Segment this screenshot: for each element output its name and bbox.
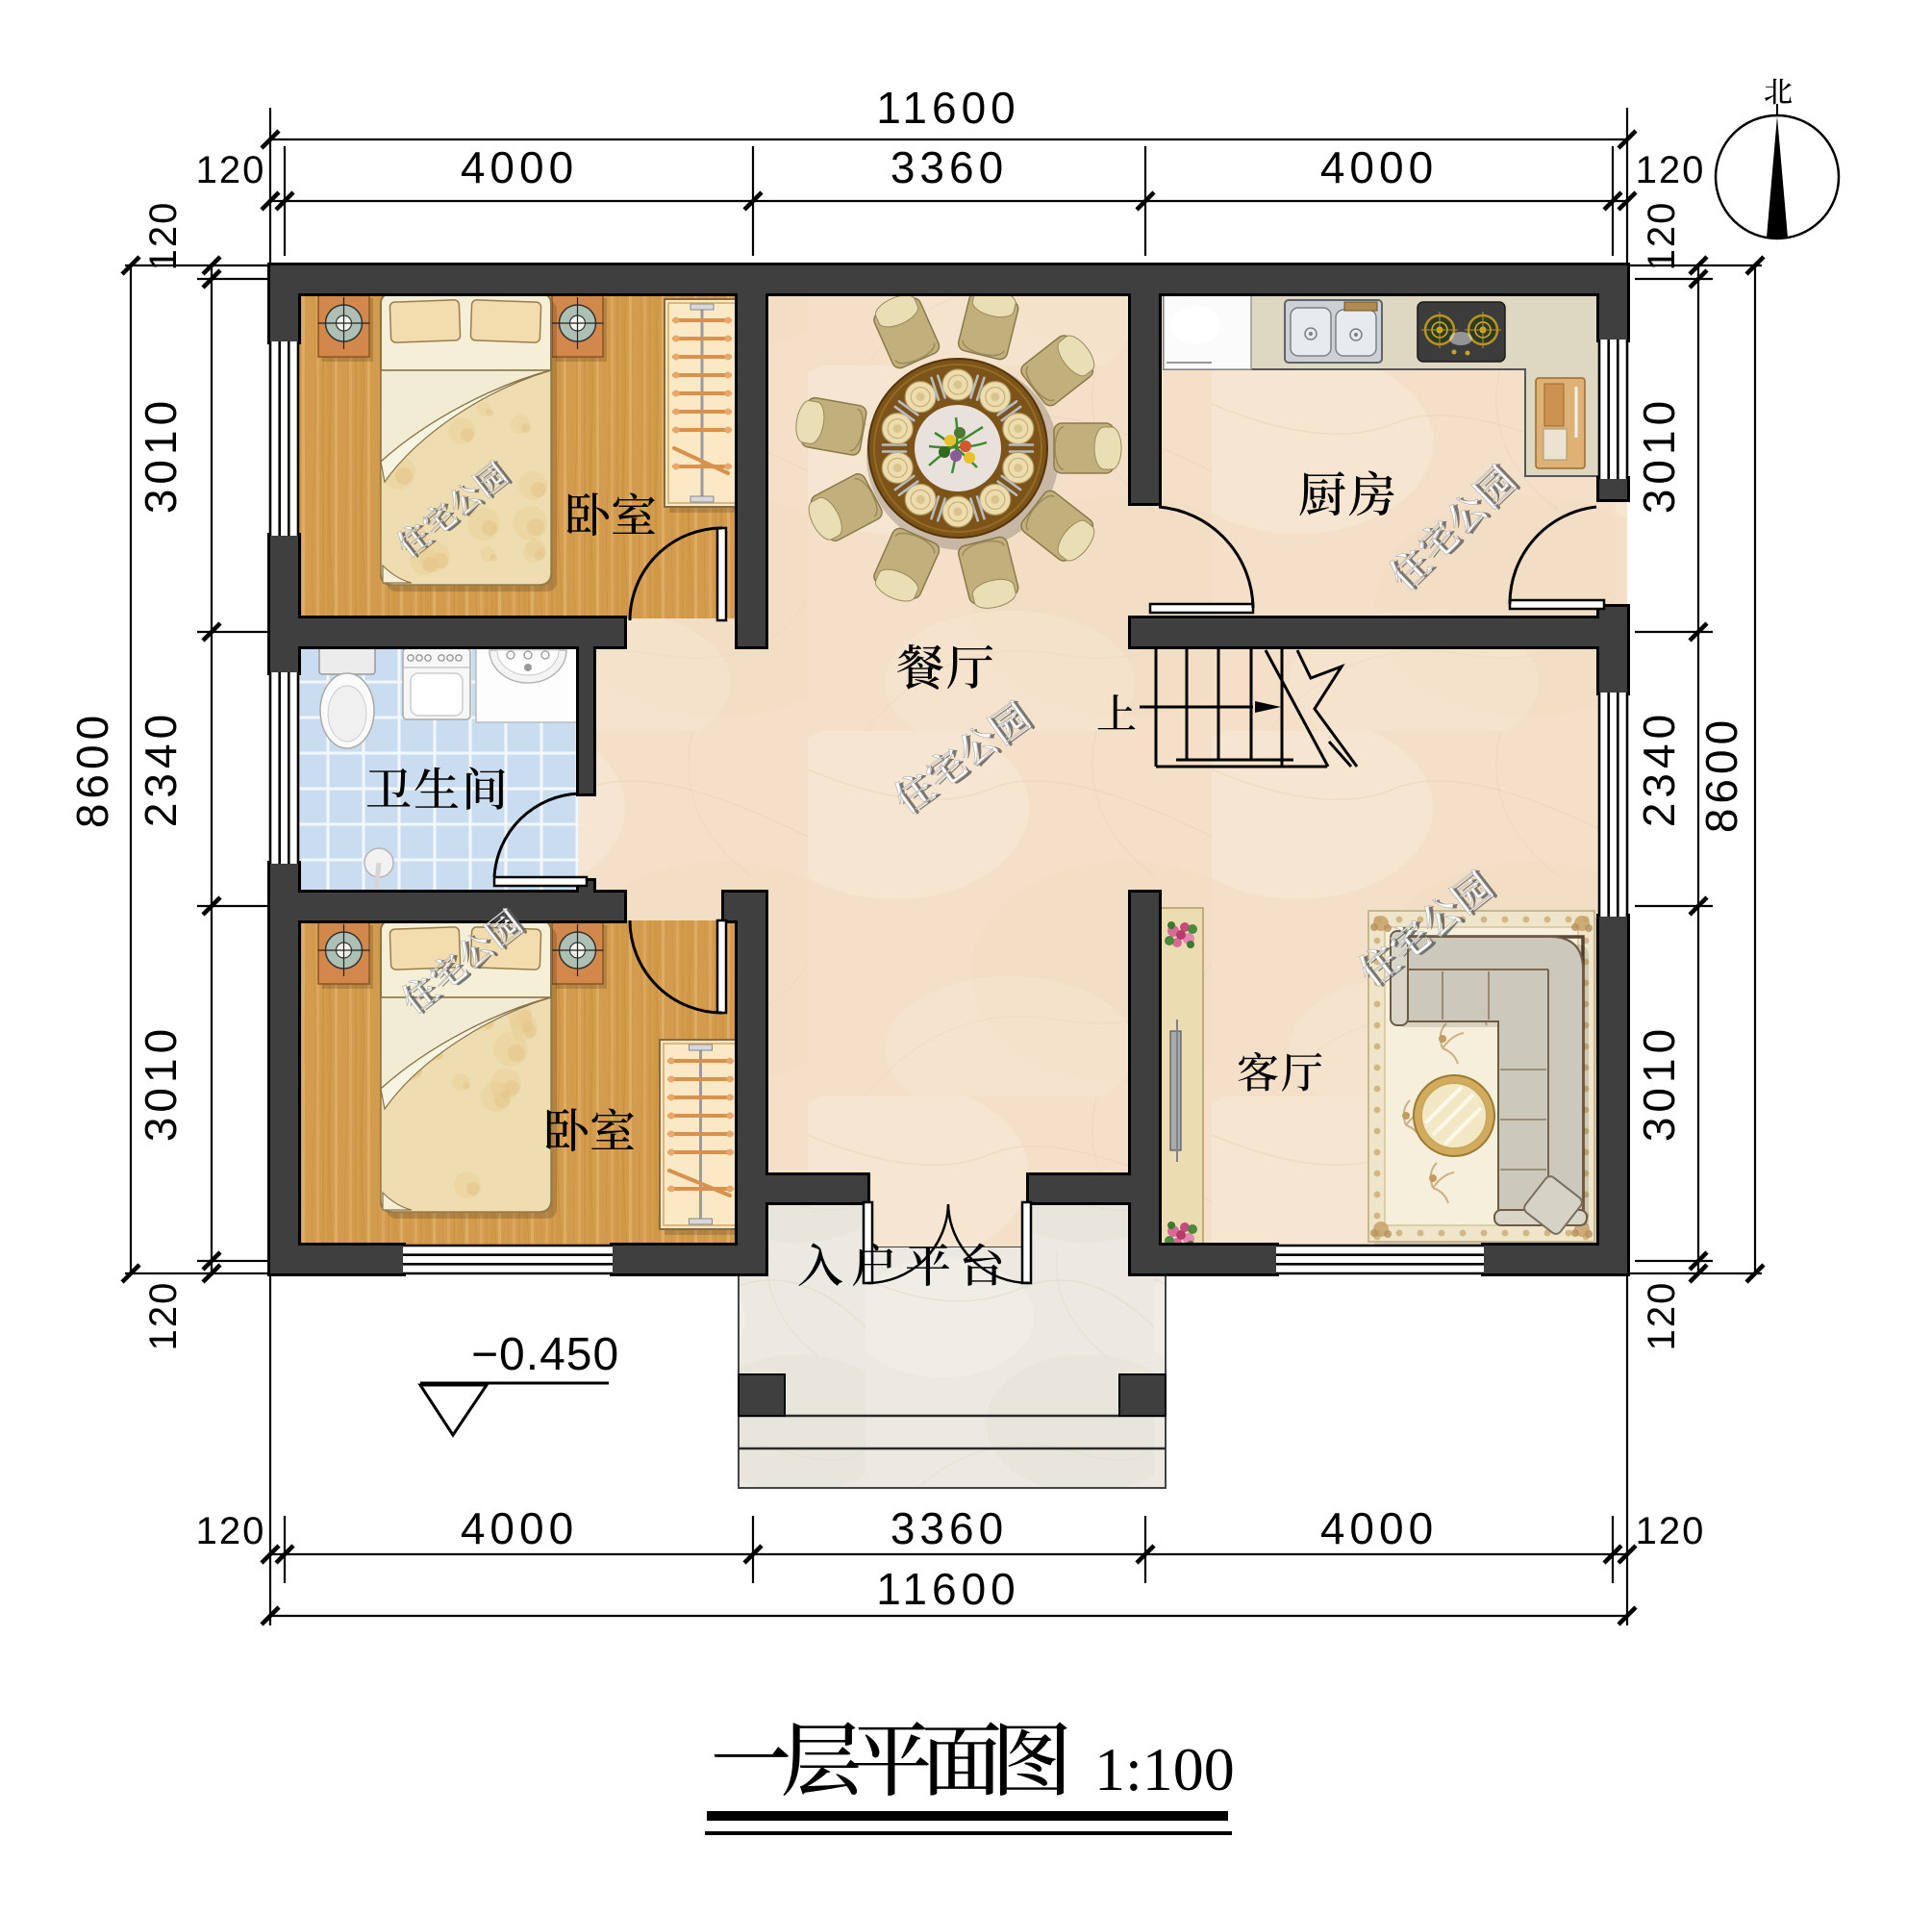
svg-text:1:100: 1:100	[1094, 1735, 1235, 1803]
svg-text:3010: 3010	[1634, 396, 1684, 514]
svg-text:4000: 4000	[461, 1503, 578, 1553]
svg-text:3360: 3360	[891, 1503, 1008, 1553]
svg-text:120: 120	[1636, 1510, 1706, 1552]
svg-text:8600: 8600	[67, 711, 117, 828]
svg-text:4000: 4000	[461, 142, 578, 192]
svg-text:3010: 3010	[136, 1024, 186, 1142]
svg-text:120: 120	[196, 1510, 266, 1552]
svg-text:3010: 3010	[136, 396, 186, 514]
svg-text:2340: 2340	[136, 710, 186, 827]
svg-text:120: 120	[142, 1281, 185, 1351]
svg-text:2340: 2340	[1634, 710, 1684, 827]
svg-text:−0.450: −0.450	[471, 1329, 619, 1380]
svg-text:120: 120	[196, 149, 266, 191]
svg-text:3360: 3360	[891, 142, 1008, 192]
svg-text:11600: 11600	[876, 83, 1020, 133]
svg-text:8600: 8600	[1696, 716, 1746, 833]
svg-text:120: 120	[1636, 149, 1706, 191]
svg-text:4000: 4000	[1320, 142, 1438, 192]
svg-text:3010: 3010	[1634, 1024, 1684, 1142]
svg-text:120: 120	[1641, 1281, 1683, 1351]
svg-text:11600: 11600	[876, 1564, 1020, 1614]
svg-text:4000: 4000	[1320, 1503, 1438, 1553]
svg-text:120: 120	[142, 201, 185, 271]
svg-text:120: 120	[1641, 201, 1683, 271]
